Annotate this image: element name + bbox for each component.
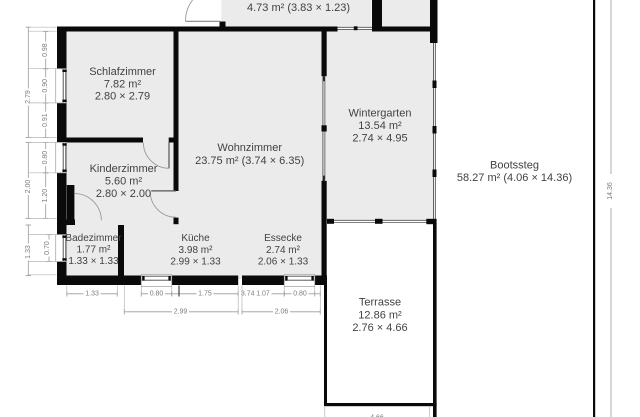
svg-text:1.07: 1.07	[256, 290, 270, 297]
svg-text:2.80 × 2.79: 2.80 × 2.79	[95, 90, 150, 102]
svg-text:Terrasse: Terrasse	[359, 297, 401, 309]
svg-text:2.74 m²: 2.74 m²	[266, 245, 301, 256]
svg-text:2.80 × 2.00: 2.80 × 2.00	[96, 188, 151, 200]
svg-text:58.27 m² (4.06 × 14.36): 58.27 m² (4.06 × 14.36)	[457, 172, 572, 184]
svg-text:1.33: 1.33	[25, 245, 32, 259]
svg-text:1.20: 1.20	[42, 189, 49, 203]
svg-text:2.99 × 1.33: 2.99 × 1.33	[170, 257, 221, 268]
svg-text:0.90: 0.90	[42, 79, 49, 93]
svg-text:2.06: 2.06	[275, 308, 289, 315]
svg-text:Schlafzimmer: Schlafzimmer	[89, 66, 156, 78]
svg-text:13.54 m²: 13.54 m²	[358, 120, 402, 132]
svg-text:23.75 m² (3.74 × 6.35): 23.75 m² (3.74 × 6.35)	[195, 155, 304, 167]
svg-text:1.75: 1.75	[198, 290, 212, 297]
svg-text:2.74 × 4.95: 2.74 × 4.95	[352, 133, 407, 145]
svg-text:Bootssteg: Bootssteg	[490, 159, 539, 171]
svg-text:3.74: 3.74	[241, 290, 255, 297]
svg-text:2.76 × 4.66: 2.76 × 4.66	[352, 322, 407, 334]
svg-text:14.36: 14.36	[607, 182, 614, 200]
svg-text:0.80: 0.80	[150, 290, 164, 297]
svg-text:Wohnzimmer: Wohnzimmer	[217, 142, 282, 154]
svg-text:Wintergarten: Wintergarten	[349, 108, 412, 120]
svg-text:0.80: 0.80	[42, 151, 49, 165]
svg-text:2.99: 2.99	[174, 308, 188, 315]
svg-text:0.91: 0.91	[42, 113, 49, 127]
svg-text:2.79: 2.79	[25, 90, 32, 104]
svg-text:Küche: Küche	[181, 233, 210, 244]
svg-text:Badezimmer: Badezimmer	[65, 233, 122, 244]
svg-text:7.82 m²: 7.82 m²	[104, 78, 142, 90]
svg-text:1.33: 1.33	[85, 290, 99, 297]
svg-text:4.73 m² (3.83 × 1.23): 4.73 m² (3.83 × 1.23)	[247, 2, 350, 14]
svg-text:12.86 m²: 12.86 m²	[358, 309, 402, 321]
svg-text:2.06 × 1.33: 2.06 × 1.33	[258, 257, 309, 268]
svg-text:0.98: 0.98	[42, 43, 49, 57]
svg-text:0.80: 0.80	[293, 290, 307, 297]
svg-text:Kinderzimmer: Kinderzimmer	[90, 163, 158, 175]
svg-text:1.77 m²: 1.77 m²	[77, 245, 112, 256]
svg-text:1.33 × 1.33: 1.33 × 1.33	[68, 256, 119, 267]
svg-text:3.98 m²: 3.98 m²	[179, 245, 214, 256]
svg-text:2.00: 2.00	[25, 180, 32, 194]
svg-text:0.70: 0.70	[44, 241, 51, 255]
svg-text:5.60 m²: 5.60 m²	[105, 175, 143, 187]
svg-text:Essecke: Essecke	[264, 233, 302, 244]
